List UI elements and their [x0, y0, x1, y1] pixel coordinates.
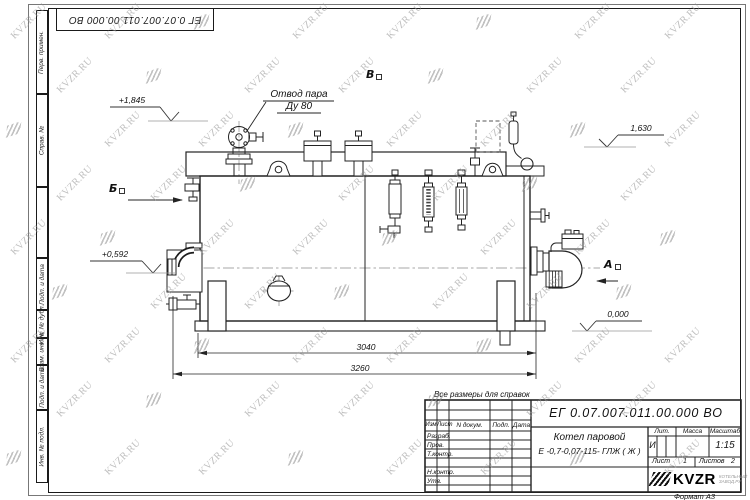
view-letter: А	[604, 258, 613, 271]
kvzr-logo-subtext: КОТЕЛЬНЫЙ ЗАВОД.РУ	[719, 474, 747, 484]
margin-cell-podp-data-1: Подп. и дата	[36, 258, 48, 310]
format-label: Формат А3	[648, 492, 741, 500]
row-tkontr: Т.контр.	[427, 451, 453, 458]
margin-cell-inv-podl: Инв. № подл.	[36, 410, 48, 483]
drawing-frame	[48, 8, 741, 493]
view-letter: В	[366, 68, 374, 81]
view-letter: Б	[109, 182, 117, 195]
dimension-3040: 3040	[336, 342, 396, 352]
view-ref-mark	[119, 188, 125, 194]
lit-label: Лит.	[648, 428, 676, 435]
mass-label: Масса	[676, 428, 709, 435]
margin-label: Подп. и дата	[39, 264, 46, 305]
scale-value: 1:15	[709, 440, 741, 451]
product-name-line2: Е -0,7-0,07-115- ГЛЖ ( Ж )	[531, 446, 648, 456]
row-utv: Утв.	[427, 478, 442, 485]
dimension-3260: 3260	[330, 363, 390, 373]
margin-cell-perv-primen: Перв. примен.	[36, 10, 48, 94]
view-ref-mark	[615, 264, 621, 270]
kvzr-hatch-icon	[649, 472, 673, 486]
row-nkontr: Н.контр.	[427, 469, 455, 476]
sheets-value: 2	[731, 458, 735, 465]
margin-cell-empty	[36, 187, 48, 258]
col-list: Лист	[437, 422, 449, 428]
callout-steam-outlet-line2: Ду 80	[277, 101, 321, 112]
rotated-doc-number-stamp: ЕГ 0.07.007.011.00.000 ВО	[56, 8, 214, 31]
drawing-sheet: Перв. примен. Справ. № Подп. и дата Инв.…	[0, 0, 750, 500]
scale-label: Масштаб	[709, 428, 741, 435]
elevation-value-0000: 0,000	[594, 309, 642, 319]
kvzr-logo-text: KVZR	[673, 471, 716, 488]
sheet-value: 1	[683, 458, 687, 465]
sheet-label: Лист	[652, 458, 670, 465]
title-doc-number: ЕГ 0.07.007.011.00.000 ВО	[533, 406, 739, 420]
company-logo: KVZR КОТЕЛЬНЫЙ ЗАВОД.РУ	[651, 468, 739, 490]
col-data: Дата	[512, 422, 531, 429]
watermark-logo	[6, 121, 22, 138]
margin-label: Инв. № подл.	[39, 426, 46, 466]
margin-label: Подп. и дата	[39, 367, 46, 408]
doc-number-rotated: ЕГ 0.07.007.011.00.000 ВО	[69, 14, 202, 25]
col-podp: Подп.	[490, 422, 512, 429]
view-label-a: А	[604, 258, 621, 271]
margin-label: Перв. примен.	[39, 30, 46, 73]
watermark-logo	[6, 449, 22, 466]
elevation-value-1845: +1,845	[106, 95, 158, 105]
margin-cell-sprav: Справ. №	[36, 94, 48, 187]
col-ndoc: N докум.	[449, 422, 490, 429]
view-label-b: Б	[109, 182, 125, 195]
reference-note: Все размеры для справок	[434, 390, 530, 399]
elevation-value-0592: +0,592	[88, 249, 142, 259]
callout-steam-outlet-line1: Отвод пара	[263, 89, 335, 100]
elevation-value-1630: 1,630	[616, 123, 666, 133]
margin-label: Справ. №	[39, 126, 46, 156]
product-name-line1: Котел паровой	[533, 432, 646, 443]
sheets-label: Листов	[699, 458, 725, 465]
lit-value: И	[648, 440, 657, 450]
col-izm: Изм	[425, 422, 437, 428]
margin-cell-podp-data-2: Подп. и дата	[36, 365, 48, 410]
logo-sub-line2: ЗАВОД.РУ	[719, 479, 747, 484]
margin-cell-vzam-inv: Взам. инв. №	[36, 338, 48, 365]
view-ref-mark	[376, 74, 382, 80]
row-prov: Пров.	[427, 442, 444, 449]
view-label-v: В	[366, 68, 382, 81]
row-razrab: Разраб.	[427, 433, 451, 440]
